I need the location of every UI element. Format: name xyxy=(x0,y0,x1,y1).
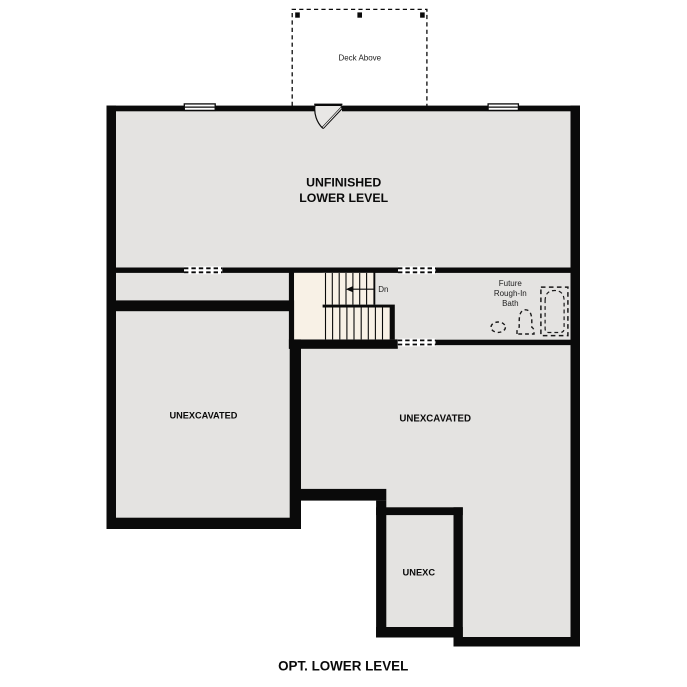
svg-text:UNEXC: UNEXC xyxy=(403,568,436,578)
svg-text:Dn: Dn xyxy=(378,285,388,294)
svg-text:Deck Above: Deck Above xyxy=(338,53,381,62)
svg-text:UNEXCAVATED: UNEXCAVATED xyxy=(169,411,237,421)
svg-text:Rough-In: Rough-In xyxy=(494,289,527,298)
svg-text:LOWER LEVEL: LOWER LEVEL xyxy=(299,191,388,205)
svg-text:Bath: Bath xyxy=(502,299,518,308)
svg-text:UNEXCAVATED: UNEXCAVATED xyxy=(399,413,471,424)
svg-text:Future: Future xyxy=(499,279,523,288)
svg-text:OPT. LOWER LEVEL: OPT. LOWER LEVEL xyxy=(278,659,408,674)
svg-text:UNFINISHED: UNFINISHED xyxy=(306,176,381,190)
